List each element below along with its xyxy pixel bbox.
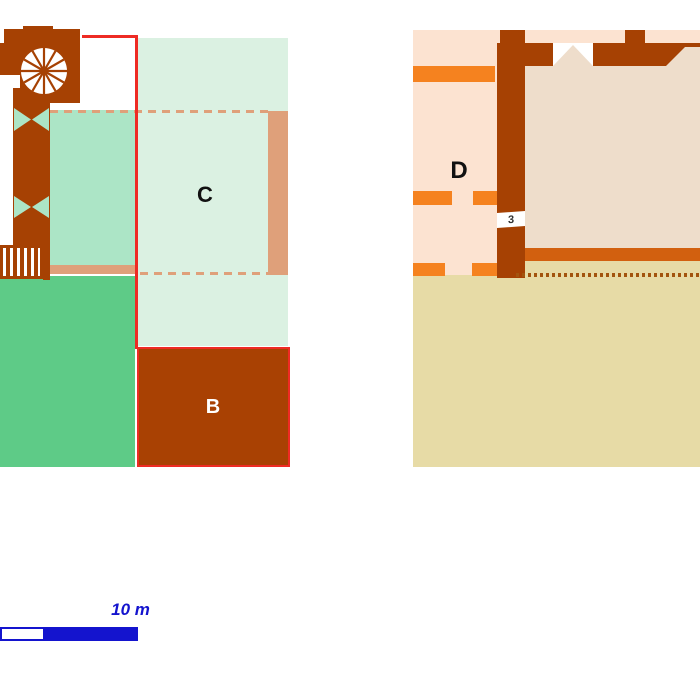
orange-wall-2a: [413, 191, 452, 205]
wall-trace-horizontal: [50, 265, 135, 274]
room-3-door-gap: 3: [497, 211, 525, 228]
orange-wall-1: [413, 66, 495, 82]
staircase-hatch: [0, 245, 43, 279]
spiral-staircase: [20, 47, 68, 95]
area-c-label: C: [190, 180, 220, 210]
floor-plan-figure: C B: [0, 0, 700, 700]
splayed-window-1: [553, 43, 593, 66]
south-wall-hall: [525, 248, 700, 261]
north-wall-pillar: [625, 30, 645, 43]
window-embrasure-2: [14, 196, 49, 218]
north-wall-segment-b: [593, 43, 663, 66]
orange-wall-3a: [413, 263, 445, 276]
scale-bar-fill: [43, 629, 136, 639]
courtyard-tan-area: [413, 261, 700, 467]
north-corridor: [413, 30, 700, 43]
main-hall: [525, 66, 700, 248]
dotted-wall-trace: [516, 273, 700, 277]
splayed-window-2: [663, 43, 700, 66]
corner-pillar: [500, 30, 525, 43]
corner-wall-column: [497, 43, 525, 278]
window-embrasure-1: [14, 108, 49, 131]
dashed-line-top: [50, 110, 268, 113]
north-wall-segment-a: [525, 43, 553, 66]
area-d-label: D: [443, 155, 475, 187]
scale-bar-label: 10 m: [103, 600, 158, 620]
wall-top-band: [4, 29, 80, 43]
red-outline-top: [82, 35, 138, 38]
inner-court-room: [50, 110, 135, 273]
garden-area: [0, 276, 135, 467]
wall-trace-vertical: [268, 111, 288, 275]
west-wall-stub: [43, 245, 50, 280]
orange-wall-2b: [473, 191, 497, 205]
scale-bar: [0, 627, 138, 641]
dashed-line-bottom: [140, 272, 268, 275]
room-3-label: 3: [508, 213, 514, 225]
orange-wall-3b: [472, 263, 497, 276]
red-outline-vertical: [135, 35, 138, 349]
area-b-label: B: [198, 392, 228, 422]
